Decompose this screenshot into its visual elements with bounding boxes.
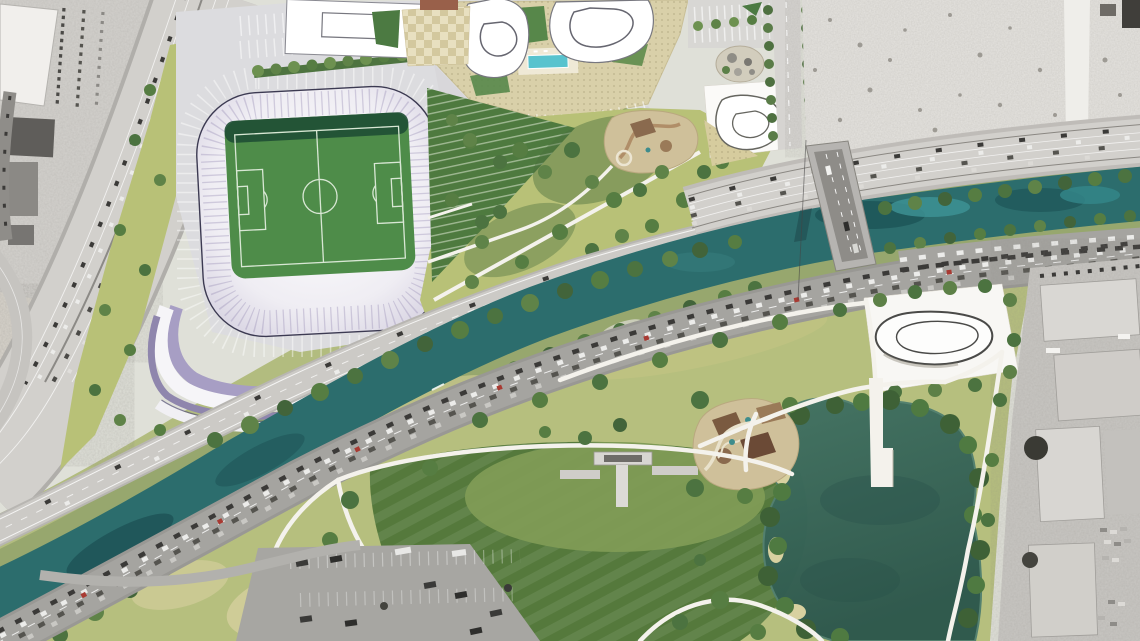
park-trees-part bbox=[712, 332, 728, 348]
park-trees-part bbox=[539, 426, 551, 438]
parked-cars-part bbox=[380, 602, 388, 610]
greenbelt-trees-part bbox=[124, 344, 136, 356]
dirt-road bbox=[1064, 0, 1090, 136]
hillside-park-part bbox=[564, 142, 580, 158]
greenbelt-trees-part bbox=[139, 264, 151, 276]
park-trees-part bbox=[422, 460, 438, 476]
campus-street-part bbox=[768, 131, 778, 141]
scrub-speckle-part bbox=[903, 28, 907, 32]
warehouse-building bbox=[1036, 426, 1105, 521]
riverbank-trees-part bbox=[914, 237, 926, 249]
terrace-trees-part bbox=[463, 133, 477, 147]
amphitheater-stage-part bbox=[560, 470, 600, 479]
scrub-speckle-part bbox=[838, 118, 842, 122]
hillside-park-part bbox=[475, 235, 489, 249]
lakeside-building-parcel-part bbox=[1007, 333, 1021, 347]
lakeside-building-parcel-part bbox=[968, 378, 982, 392]
container-yard-part bbox=[1110, 530, 1117, 534]
campus-street-part bbox=[764, 41, 774, 51]
hillside-park-part bbox=[697, 165, 711, 179]
hillside-park-part bbox=[552, 224, 568, 240]
hillside-park-part bbox=[493, 205, 507, 219]
park-trees-part bbox=[672, 614, 688, 630]
scrub-speckle-part bbox=[1118, 93, 1122, 97]
lawn-patch bbox=[372, 10, 400, 48]
hillside-park-part bbox=[606, 192, 622, 208]
dark-structure bbox=[1122, 0, 1140, 28]
container-yard-part bbox=[1102, 556, 1109, 560]
northeast-parking-part bbox=[729, 17, 739, 27]
park-trees-part bbox=[772, 314, 788, 330]
lakeside-building bbox=[876, 312, 993, 365]
terrace-trees-part bbox=[445, 193, 459, 207]
park-trees-part bbox=[472, 412, 488, 428]
riverbank-trees-part bbox=[1124, 210, 1136, 222]
greenbelt-trees-part bbox=[114, 414, 126, 426]
rock-garden-part bbox=[734, 68, 742, 76]
plaza-hedge-row-part bbox=[307, 60, 318, 71]
dark-tree bbox=[1024, 436, 1048, 460]
scrub-speckle-part bbox=[858, 43, 863, 48]
scrub-speckle-part bbox=[918, 108, 922, 112]
park-trees-part bbox=[592, 374, 608, 390]
container-yard-part bbox=[1108, 600, 1115, 604]
campus-street-part bbox=[763, 5, 773, 15]
greenbelt-trees-part bbox=[89, 384, 101, 396]
plaza-hedge-row-part bbox=[343, 56, 354, 67]
park-trees-part bbox=[750, 624, 766, 640]
dark-structure bbox=[1100, 4, 1116, 16]
northeast-parking bbox=[688, 0, 774, 48]
riverbank-trees-part bbox=[417, 336, 433, 352]
greenbelt-trees-part bbox=[144, 84, 156, 96]
riverbank-trees-part bbox=[944, 232, 956, 244]
container-yard-part bbox=[1100, 528, 1107, 532]
riverbank-trees-part bbox=[878, 201, 892, 215]
riverbank-trees-part bbox=[908, 196, 922, 210]
lake-ring-trees-part bbox=[773, 483, 791, 501]
hillside-park-part bbox=[615, 229, 629, 243]
northeast-parking-part bbox=[693, 21, 703, 31]
rock-garden-part bbox=[722, 66, 730, 74]
park-trees-part bbox=[711, 591, 729, 609]
warehouse-building bbox=[1028, 543, 1097, 637]
lake-ring-trees-part bbox=[958, 608, 978, 628]
hillside-park-part bbox=[645, 219, 659, 233]
amphitheater-stage-part bbox=[652, 466, 698, 475]
riverbank-trees-part bbox=[998, 184, 1012, 198]
park-trees-part bbox=[833, 303, 847, 317]
rock-garden-part bbox=[749, 69, 755, 75]
campus-street-part bbox=[766, 95, 776, 105]
scrub-speckle-part bbox=[1053, 113, 1057, 117]
riverbank-trees-part bbox=[277, 400, 293, 416]
lakeside-building-parcel-part bbox=[943, 281, 957, 295]
park-trees-part bbox=[613, 418, 627, 432]
lake-ring-trees-part bbox=[758, 566, 778, 586]
lake-ring-trees-part bbox=[760, 507, 780, 527]
truck bbox=[1046, 348, 1060, 353]
riverbank-trees-part bbox=[1094, 213, 1106, 225]
scrub-speckle-part bbox=[813, 68, 817, 72]
hillside-park-part bbox=[446, 114, 458, 126]
riverbank-trees-part bbox=[1028, 180, 1042, 194]
riverbank-trees-part bbox=[884, 242, 896, 254]
container-yard-part bbox=[1110, 622, 1117, 626]
greenbelt-trees-part bbox=[154, 174, 166, 186]
park-trees-part bbox=[985, 453, 999, 467]
terrace-trees-part bbox=[493, 155, 507, 169]
hillside-park-part bbox=[465, 275, 479, 289]
parked-cars-part bbox=[504, 584, 512, 592]
scrub-speckle-part bbox=[1008, 26, 1012, 30]
park-trees-part bbox=[532, 392, 548, 408]
riverbank-trees-part bbox=[241, 416, 259, 434]
pool-deck-part bbox=[544, 50, 548, 52]
park-playground-part bbox=[737, 488, 753, 504]
scrub-speckle-part bbox=[828, 18, 832, 22]
rock-garden-part bbox=[716, 46, 764, 82]
greenbelt-trees-part bbox=[154, 424, 166, 436]
park-trees-part bbox=[694, 554, 706, 566]
scrub-speckle-part bbox=[868, 88, 873, 93]
hillside-park-part bbox=[515, 255, 529, 269]
campus-street-part bbox=[764, 59, 774, 69]
plaza-hedge-row-part bbox=[271, 64, 282, 75]
riverbank-trees-part bbox=[557, 283, 573, 299]
site-plan-svg bbox=[0, 0, 1140, 641]
truck bbox=[1118, 334, 1130, 339]
paved-plaza bbox=[402, 6, 470, 66]
scrub-speckle-part bbox=[978, 53, 983, 58]
pool-deck-part bbox=[534, 50, 538, 52]
hillside-playground-part bbox=[646, 148, 651, 153]
greenbelt-trees-part bbox=[129, 134, 141, 146]
riverbank-trees-part bbox=[1088, 172, 1102, 186]
lakeside-building-parcel-part bbox=[873, 293, 887, 307]
hillside-park-part bbox=[512, 142, 528, 158]
riverbank-trees-part bbox=[728, 235, 742, 249]
park-trees-part bbox=[993, 393, 1007, 407]
lake-ring-trees-part bbox=[959, 436, 977, 454]
scrub-speckle-part bbox=[998, 103, 1002, 107]
riverbank-trees-part bbox=[938, 192, 952, 206]
riverbank-trees-part bbox=[347, 368, 363, 384]
park-playground-part bbox=[729, 439, 735, 445]
park-trees-part bbox=[981, 513, 995, 527]
rock-garden bbox=[716, 46, 764, 82]
warehouse-building bbox=[1040, 279, 1140, 342]
lakeside-building-parcel-part bbox=[908, 285, 922, 299]
plaza-hedge-row-part bbox=[288, 61, 300, 73]
scrub-speckle-part bbox=[958, 93, 962, 97]
dark-tree bbox=[1022, 552, 1038, 568]
park-lake-part bbox=[800, 558, 900, 602]
container-yard-part bbox=[1114, 542, 1121, 546]
riverbank-trees-part bbox=[311, 383, 329, 401]
container-yard-part bbox=[1098, 616, 1105, 620]
lake-ring-trees-part bbox=[967, 576, 985, 594]
container-yard-part bbox=[1120, 527, 1127, 531]
container-yard-part bbox=[1118, 602, 1125, 606]
hillside-park-part bbox=[585, 175, 599, 189]
riverbank-trees-part bbox=[662, 251, 678, 267]
northeast-parking-part bbox=[747, 15, 757, 25]
hillside-playground-part bbox=[660, 140, 672, 152]
lake-ring-trees-part bbox=[769, 537, 787, 555]
lake-ring-trees-part bbox=[940, 414, 960, 434]
lakeside-building-parcel-part bbox=[1003, 365, 1017, 379]
riverbank-trees-part bbox=[627, 261, 643, 277]
scrub-speckle-part bbox=[1038, 68, 1042, 72]
local-street bbox=[3, 92, 10, 240]
red-roof-building bbox=[420, 0, 458, 10]
greenbelt-trees-part bbox=[114, 224, 126, 236]
scrub-speckle-part bbox=[1103, 58, 1108, 63]
riverbank-trees-part bbox=[487, 308, 503, 324]
lake-ring-trees-part bbox=[853, 393, 871, 411]
amphitheater-stage-part bbox=[616, 465, 628, 507]
riverbank-trees-part bbox=[207, 432, 223, 448]
plaza-hedge-row-part bbox=[324, 57, 336, 69]
container-yard-part bbox=[1104, 540, 1111, 544]
river-part bbox=[890, 197, 970, 217]
warehouse-building bbox=[1054, 349, 1140, 421]
hillside-park-part bbox=[633, 183, 647, 197]
lake-ring-trees-part bbox=[970, 540, 990, 560]
campus-street-part bbox=[767, 113, 777, 123]
lakeside-building-parcel-part bbox=[1003, 293, 1017, 307]
park-trees-part bbox=[341, 491, 359, 509]
riverbank-trees-part bbox=[591, 271, 609, 289]
riverbank-trees-part bbox=[381, 351, 399, 369]
amphitheater-stage-part bbox=[604, 455, 642, 462]
riverbank-trees-part bbox=[521, 294, 539, 312]
site-plan-image bbox=[0, 0, 1140, 641]
campus-street-part bbox=[765, 77, 775, 87]
lakeside-building-parcel-part bbox=[978, 279, 992, 293]
park-playground-part bbox=[691, 391, 709, 409]
scrub-speckle-part bbox=[933, 128, 938, 133]
riverbank-trees-part bbox=[1118, 169, 1132, 183]
hillside-park-part bbox=[538, 165, 552, 179]
riverbank-trees-part bbox=[1034, 220, 1046, 232]
plaza-hedge-row-part bbox=[252, 65, 264, 77]
park-trees-part bbox=[652, 352, 668, 368]
riverbank-trees-part bbox=[451, 321, 469, 339]
greenbelt-trees-part bbox=[99, 304, 111, 316]
riverbank-trees-part bbox=[692, 242, 708, 258]
terrace-trees-part bbox=[475, 215, 489, 229]
rock-garden-part bbox=[727, 53, 737, 63]
riverbank-trees-part bbox=[1058, 176, 1072, 190]
riverbank-trees-part bbox=[974, 228, 986, 240]
rock-garden-part bbox=[744, 58, 752, 66]
scrub-speckle-part bbox=[888, 58, 892, 62]
campus-street-part bbox=[763, 23, 773, 33]
northeast-parking-part bbox=[711, 19, 721, 29]
park-trees-part bbox=[578, 431, 592, 445]
lakeside-building-parcel-part bbox=[928, 383, 942, 397]
hillside-park-part bbox=[655, 165, 669, 179]
warehouse-building bbox=[1104, 429, 1140, 515]
park-playground-part bbox=[686, 479, 704, 497]
riverbank-trees-part bbox=[1004, 224, 1016, 236]
lake-ring-trees-part bbox=[911, 399, 929, 417]
container-yard-part bbox=[1112, 558, 1119, 562]
swimming-pool bbox=[528, 54, 568, 68]
riverbank-trees-part bbox=[968, 188, 982, 202]
scrub-speckle-part bbox=[948, 13, 952, 17]
riverbank-trees-part bbox=[1064, 216, 1076, 228]
container-yard-part bbox=[1124, 539, 1131, 543]
